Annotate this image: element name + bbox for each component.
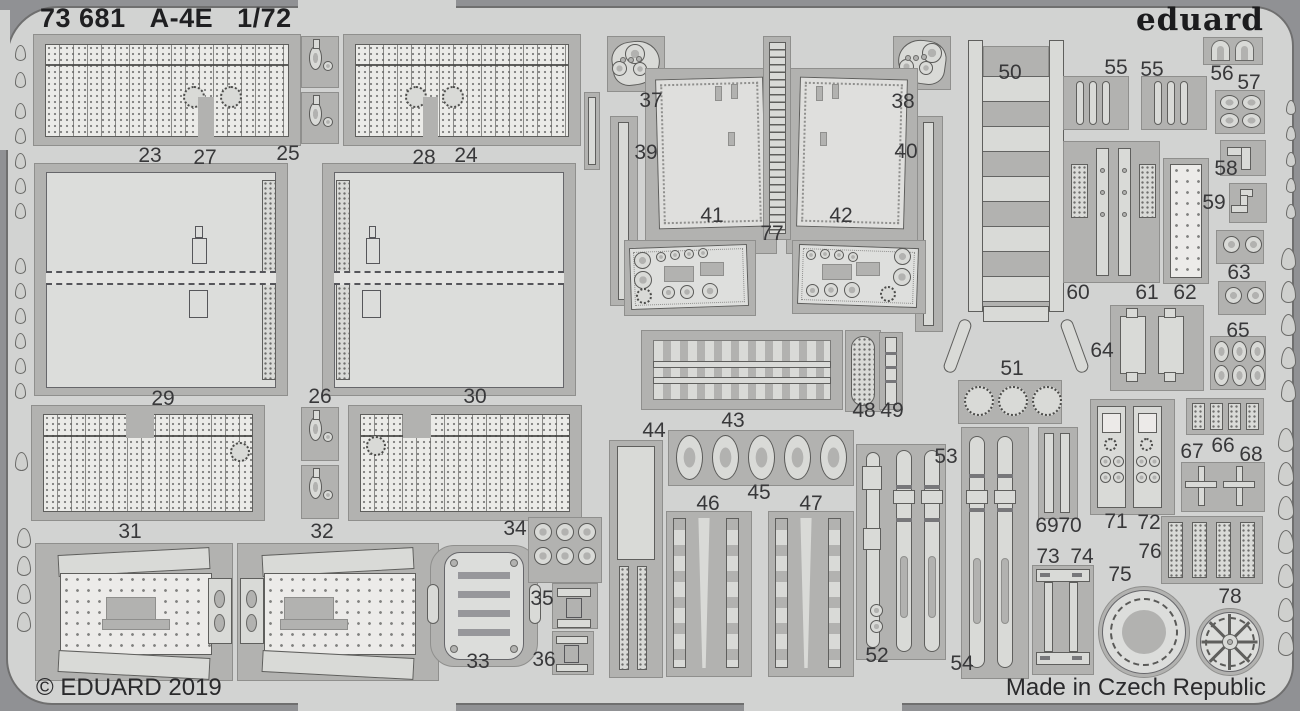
- etch-part: [1154, 81, 1162, 125]
- etch-donut: [656, 252, 666, 262]
- etch-part: [862, 466, 882, 490]
- etch-donut: [844, 282, 860, 298]
- strip-49: [885, 337, 897, 405]
- etch-hole: [620, 57, 626, 63]
- etch-outline: [192, 238, 207, 264]
- part-label-42: 42: [829, 204, 852, 228]
- etch-part: [1060, 433, 1070, 513]
- etch-hole: [214, 614, 225, 632]
- etch-drop: [1286, 204, 1296, 219]
- part-label-58: 58: [1214, 157, 1237, 181]
- etch-donut: [323, 117, 333, 127]
- etch-gear: [1032, 386, 1062, 416]
- copyright-text: © EDUARD 2019: [36, 674, 222, 702]
- etch-dk: [969, 474, 985, 478]
- etch-donut: [1232, 341, 1247, 362]
- part-label-25: 25: [276, 142, 299, 166]
- etch-donut: [1220, 95, 1239, 110]
- etch-hole: [1227, 639, 1233, 645]
- etch-donut: [1214, 365, 1229, 386]
- part-label-69: 69: [1035, 514, 1058, 538]
- missile-body-53: [924, 450, 940, 652]
- etch-donut: [1149, 472, 1160, 483]
- part-label-23: 23: [138, 144, 161, 168]
- part-label-51: 51: [1000, 357, 1023, 381]
- part-label-64: 64: [1090, 339, 1113, 363]
- etch-donut: [870, 604, 883, 617]
- etch-basef: [744, 701, 902, 711]
- etch-donut: [676, 435, 703, 480]
- part-label-63: 63: [1227, 261, 1250, 285]
- etch-drop: [15, 72, 26, 88]
- part-label-60: 60: [1066, 281, 1089, 305]
- etch-donut: [1242, 113, 1261, 128]
- link-set-43: [653, 340, 831, 400]
- part-label-50: 50: [998, 61, 1021, 85]
- etch-hole: [628, 57, 634, 63]
- etch-dotcol: [619, 566, 629, 670]
- etch-part: [966, 490, 988, 504]
- part-label-52: 52: [865, 644, 888, 668]
- etch-part: [1044, 582, 1053, 652]
- part-label-56: 56: [1210, 62, 1233, 86]
- part-label-70: 70: [1058, 514, 1081, 538]
- perf-panel-62: [1170, 164, 1202, 278]
- etch-donut: [1250, 365, 1265, 386]
- part-label-33: 33: [466, 650, 489, 674]
- etch-donut: [848, 252, 858, 262]
- part-label-49: 49: [880, 399, 903, 423]
- etch-gear: [998, 386, 1028, 416]
- etch-drop: [1286, 126, 1296, 141]
- etch-donut: [323, 61, 333, 71]
- etch-donut: [556, 547, 574, 565]
- etch-dk: [997, 474, 1013, 478]
- missile-body-54: [997, 436, 1013, 668]
- part-label-47: 47: [799, 492, 822, 516]
- etch-win: [715, 86, 722, 101]
- part-label-30: 30: [463, 385, 486, 409]
- part-label-55: 55: [1140, 58, 1163, 82]
- etch-basef: [0, 10, 10, 150]
- etch-part: [1126, 308, 1138, 318]
- part-label-35: 35: [530, 587, 553, 611]
- etch-gear: [880, 286, 896, 302]
- etch-part: [1180, 81, 1188, 125]
- part-label-34: 34: [503, 517, 526, 541]
- etch-hole: [510, 559, 518, 567]
- etch-part: [994, 490, 1016, 504]
- etch-dk: [885, 380, 897, 383]
- etch-winp: [1122, 610, 1166, 654]
- etch-part: [588, 97, 596, 165]
- etch-donut: [1223, 236, 1240, 253]
- part-label-46: 46: [696, 492, 719, 516]
- etch-donut: [634, 252, 651, 269]
- etch-part: [1164, 372, 1176, 382]
- etch-hole: [1100, 168, 1105, 173]
- ladder-50-rail: [1049, 40, 1064, 312]
- etch-drop: [1286, 100, 1296, 115]
- aircraft-type: A-4E: [150, 3, 214, 33]
- etch-donut: [870, 620, 883, 633]
- etch-donut: [1100, 456, 1111, 467]
- etch-part: [1126, 372, 1138, 382]
- etch-dk: [997, 508, 1013, 512]
- ladder-50-rail: [968, 40, 983, 312]
- etch-drop: [15, 258, 26, 274]
- etch-outline: [369, 226, 376, 238]
- etch-drop: [15, 308, 26, 324]
- etch-gear: [1140, 438, 1153, 451]
- etch-louvers: [458, 572, 510, 642]
- etch-donut: [698, 248, 708, 258]
- etch-hole: [246, 614, 257, 632]
- etch-part: [557, 619, 591, 628]
- etch-slots: [775, 518, 788, 668]
- etch-donut: [309, 46, 322, 70]
- etch-win: [856, 262, 880, 276]
- etch-donut: [1214, 341, 1229, 362]
- part-label-66: 66: [1211, 434, 1234, 458]
- etch-part: [1167, 81, 1175, 125]
- part-label-76: 76: [1138, 540, 1161, 564]
- part-label-28: 28: [412, 146, 435, 170]
- part-label-74: 74: [1070, 545, 1093, 569]
- etch-hole: [450, 559, 458, 567]
- part-label-26: 26: [308, 385, 331, 409]
- scale-label: 1/72: [237, 3, 292, 33]
- etch-win: [731, 84, 738, 99]
- etch-part: [427, 584, 439, 624]
- part-label-73: 73: [1036, 545, 1059, 569]
- part-label-32: 32: [310, 520, 333, 544]
- part-label-75: 75: [1108, 563, 1131, 587]
- etch-part: [313, 95, 320, 105]
- etch-dotcol: [1168, 522, 1183, 578]
- etch-donut: [1250, 341, 1265, 362]
- etch-hole: [921, 54, 927, 60]
- part-label-39: 39: [634, 141, 657, 165]
- etch-hole: [913, 55, 919, 61]
- part-label-40: 40: [894, 140, 917, 164]
- etch-win: [664, 266, 694, 282]
- part-label-37: 37: [639, 89, 662, 113]
- etch-drop: [15, 128, 26, 144]
- etch-part: [1069, 582, 1078, 652]
- etch-part: [653, 361, 831, 368]
- etch-donut: [806, 284, 819, 297]
- etch-hole: [1122, 168, 1127, 173]
- etch-dotcol: [637, 566, 647, 670]
- etch-part: [1223, 481, 1255, 488]
- etch-donut: [1247, 287, 1264, 304]
- etch-part: [1241, 147, 1251, 170]
- etch-dotcol: [1246, 403, 1259, 430]
- etch-part: [208, 578, 232, 644]
- etch-drop: [1286, 152, 1296, 167]
- etch-part: [653, 377, 831, 384]
- etch-part: [240, 578, 264, 644]
- etch-part: [1089, 81, 1097, 125]
- etch-drop: [15, 178, 26, 194]
- etch-dotcol: [1216, 522, 1231, 578]
- etch-win: [102, 619, 170, 630]
- etch-outline: [362, 290, 381, 318]
- etch-part: [313, 410, 320, 420]
- etch-donut: [1245, 236, 1262, 253]
- etch-hole: [636, 56, 642, 62]
- ladder-50-rungs: [983, 76, 1049, 306]
- etch-outline: [564, 645, 579, 663]
- etch-donut: [309, 417, 322, 441]
- etch-part: [863, 528, 881, 550]
- etch-part: [313, 39, 320, 49]
- etch-drop: [17, 584, 31, 604]
- etch-drop: [17, 528, 31, 548]
- etch-slots: [726, 518, 739, 668]
- etch-outline: [195, 226, 203, 238]
- etch-donut: [534, 523, 552, 541]
- etch-drop: [15, 333, 26, 349]
- part-label-54: 54: [950, 652, 973, 676]
- etch-part: [893, 490, 915, 504]
- etch-dk: [896, 485, 912, 489]
- etch-drop: [15, 383, 26, 399]
- etch-dk: [896, 518, 912, 522]
- etch-donut: [662, 286, 675, 299]
- etch-part: [1158, 316, 1184, 374]
- etch-donut: [1100, 472, 1111, 483]
- etch-drop: [15, 283, 26, 299]
- etch-donut: [556, 523, 574, 541]
- etch-win: [928, 556, 936, 618]
- etch-basef: [298, 0, 456, 10]
- etch-win: [822, 264, 852, 280]
- etch-donut: [578, 547, 596, 565]
- etch-donut: [578, 523, 596, 541]
- etch-win: [900, 556, 908, 618]
- etch-basef: [298, 701, 456, 711]
- etch-win: [820, 132, 827, 146]
- etch-donut: [806, 250, 816, 260]
- etch-gear: [230, 442, 250, 462]
- etch-donut: [712, 435, 739, 480]
- etch-hole: [450, 645, 458, 653]
- etch-hoop: [1236, 41, 1253, 60]
- etch-donut: [1225, 287, 1242, 304]
- etch-drop: [15, 45, 26, 61]
- etch-part: [983, 306, 1049, 322]
- part-label-65: 65: [1226, 319, 1249, 343]
- etch-donut: [1220, 113, 1239, 128]
- etch-gear: [220, 86, 242, 108]
- etch-drop: [15, 153, 26, 169]
- etch-hole: [1100, 212, 1105, 217]
- etch-donut: [309, 475, 322, 499]
- etch-white: [1138, 413, 1157, 433]
- perf-strip-48: [851, 336, 875, 406]
- part-label-31: 31: [118, 520, 141, 544]
- etch-dk: [924, 518, 940, 522]
- etch-donut: [612, 61, 627, 76]
- etch-gear: [366, 436, 386, 456]
- etch-drop: [1286, 178, 1296, 193]
- eduard-logo: eduard: [1136, 2, 1264, 38]
- etch-hole: [214, 590, 225, 608]
- etch-hole: [1122, 212, 1127, 217]
- etch-drop: [15, 103, 26, 119]
- part-label-27: 27: [193, 146, 216, 170]
- etch-donut: [684, 249, 694, 259]
- etch-drop: [15, 452, 28, 471]
- etch-donut: [784, 435, 811, 480]
- etch-win: [1001, 558, 1009, 624]
- etch-drop: [17, 556, 31, 576]
- panel-44: [617, 446, 655, 560]
- etch-donut: [670, 250, 680, 260]
- etch-winp: [126, 412, 154, 438]
- etch-dk: [969, 508, 985, 512]
- etch-gear: [964, 386, 994, 416]
- etch-donut: [323, 432, 333, 442]
- etch-dotcol: [1192, 403, 1205, 430]
- etch-slots: [828, 518, 841, 668]
- etch-donut: [1136, 456, 1147, 467]
- part-label-53: 53: [934, 445, 957, 469]
- part-label-57: 57: [1237, 71, 1260, 95]
- etch-donut: [323, 490, 333, 500]
- etch-part: [1076, 81, 1084, 125]
- ladder-strip-77: [769, 42, 786, 234]
- made-in-text: Made in Czech Republic: [1006, 674, 1266, 702]
- etch-win: [280, 619, 348, 630]
- etch-donut: [634, 271, 652, 289]
- etch-gear: [636, 288, 652, 304]
- etch-dotcol: [1139, 164, 1156, 218]
- etch-dk: [885, 366, 897, 369]
- etched-fret-scan: 73 681A-4E1/72 eduard © EDUARD 2019 Made…: [0, 0, 1300, 711]
- etch-outline: [566, 598, 582, 618]
- etch-donut: [824, 283, 838, 297]
- missile-body-53: [896, 450, 912, 652]
- etch-donut: [534, 547, 552, 565]
- part-label-36: 36: [532, 648, 555, 672]
- part-label-71: 71: [1104, 510, 1127, 534]
- part-label-61: 61: [1135, 281, 1158, 305]
- etch-donut: [894, 248, 911, 265]
- part-label-55: 55: [1104, 56, 1127, 80]
- etch-win: [728, 132, 735, 146]
- etch-donut: [1113, 472, 1124, 483]
- etch-donut: [748, 435, 775, 480]
- etch-donut: [1232, 365, 1247, 386]
- etch-donut: [820, 249, 830, 259]
- etch-win: [832, 84, 839, 99]
- part-label-72: 72: [1137, 511, 1160, 535]
- etch-dk: [1072, 573, 1082, 577]
- etch-part: [921, 490, 943, 504]
- missile-body-54: [969, 436, 985, 668]
- etch-part: [1044, 433, 1054, 513]
- etch-winp: [198, 97, 214, 139]
- etch-dotcol: [1210, 403, 1223, 430]
- etch-foldband: [46, 271, 276, 285]
- etch-donut: [1113, 456, 1124, 467]
- etch-dk: [1072, 656, 1082, 660]
- etch-outline: [189, 290, 208, 318]
- etch-dk: [1040, 656, 1050, 660]
- part-label-77: 77: [760, 222, 783, 246]
- sheet-title: 73 681A-4E1/72: [40, 3, 316, 34]
- etch-dotcol: [1240, 522, 1255, 578]
- ribbed-panel-right: [360, 414, 570, 512]
- etch-donut: [893, 268, 911, 286]
- etch-donut: [922, 43, 942, 63]
- etch-dk: [924, 485, 940, 489]
- etch-donut: [680, 285, 694, 299]
- etch-part: [1164, 308, 1176, 318]
- etch-donut: [834, 250, 844, 260]
- etch-hoop: [1212, 41, 1229, 60]
- part-label-59: 59: [1202, 191, 1225, 215]
- etch-donut: [702, 283, 718, 299]
- etch-win: [816, 86, 823, 101]
- part-label-29: 29: [151, 387, 174, 411]
- etch-part: [1120, 316, 1146, 374]
- etch-gear: [442, 86, 464, 108]
- etch-gear: [1104, 438, 1117, 451]
- etch-part: [1102, 81, 1110, 125]
- part-label-67: 67: [1180, 440, 1203, 464]
- catalog-number: 73 681: [40, 3, 126, 33]
- part-label-38: 38: [891, 90, 914, 114]
- etch-donut: [309, 102, 322, 126]
- etch-donut: [919, 61, 933, 75]
- etch-dotcol: [1192, 522, 1207, 578]
- etch-white: [1102, 413, 1121, 433]
- part-label-44: 44: [642, 419, 665, 443]
- etch-hole: [1100, 190, 1105, 195]
- hinged-panel-23: [45, 44, 289, 137]
- part-label-68: 68: [1239, 443, 1262, 467]
- etch-drop: [15, 203, 26, 219]
- etch-hole: [246, 590, 257, 608]
- part-label-41: 41: [700, 204, 723, 228]
- part-label-48: 48: [852, 399, 875, 423]
- etch-part: [556, 636, 588, 644]
- etch-hole: [1122, 190, 1127, 195]
- etch-hole: [510, 645, 518, 653]
- etch-donut: [1242, 95, 1261, 110]
- etch-part: [313, 468, 320, 478]
- etch-winp: [423, 97, 438, 139]
- etch-dotcol: [1228, 403, 1241, 430]
- etch-part: [557, 588, 591, 597]
- etch-part: [556, 664, 588, 672]
- etch-drop: [17, 612, 31, 632]
- etch-foldband: [334, 271, 564, 285]
- etch-win: [973, 558, 981, 624]
- etch-part: [1185, 481, 1217, 488]
- etch-win: [700, 262, 724, 276]
- etch-outline: [366, 238, 380, 264]
- etch-drop: [15, 358, 26, 374]
- part-label-45: 45: [747, 481, 770, 505]
- etch-dk: [1040, 573, 1050, 577]
- etch-part: [1231, 205, 1248, 213]
- etch-hole: [905, 55, 911, 61]
